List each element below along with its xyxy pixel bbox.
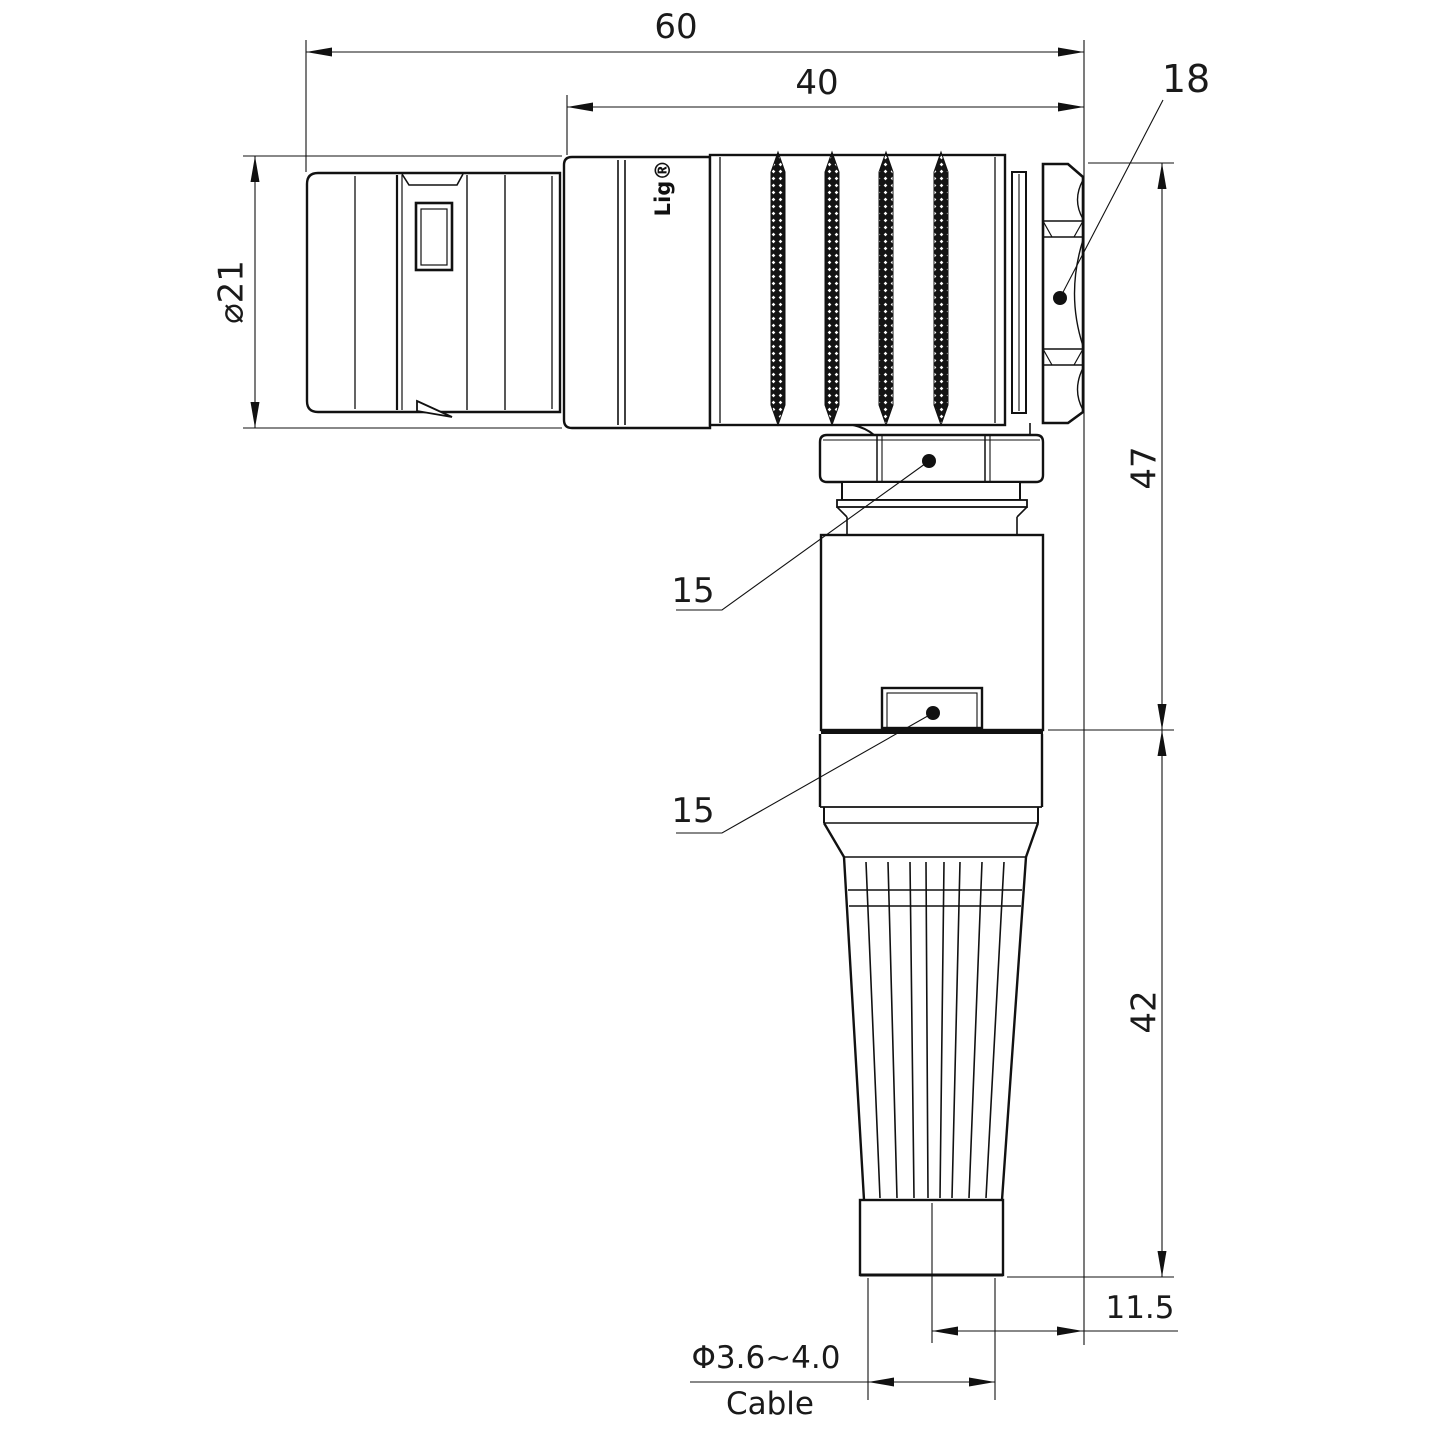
callout-coupling-nut-text: 15 (671, 571, 714, 611)
cable-label-text: Cable (726, 1386, 814, 1422)
dim-cable-diameter: Φ3.6~4.0 Cable (690, 1340, 995, 1422)
washer-ring (1012, 172, 1026, 413)
elbow-coupling-nut (820, 435, 1043, 482)
dim-cable-diameter-text: Φ3.6~4.0 (692, 1340, 841, 1376)
rear-barrel: Lig® (564, 157, 710, 428)
dim-rear-length: 40 (567, 63, 1084, 155)
brand-engraving: Lig® (651, 160, 675, 217)
lower-body (820, 535, 1043, 857)
dim-rear-length-text: 40 (795, 63, 838, 103)
dim-lower-height: 42 (1007, 730, 1174, 1277)
dim-lower-height-text: 42 (1125, 990, 1165, 1033)
step-rings (837, 482, 1027, 535)
dim-plug-diameter-text: ⌀21 (212, 260, 252, 324)
drawing-page: Lightany Lig® (0, 0, 1440, 1440)
dim-upper-height-text: 47 (1125, 446, 1165, 489)
dim-cable-offset: 11.5 (932, 1290, 1178, 1336)
knurled-sleeve (710, 152, 1005, 435)
strain-relief (844, 857, 1026, 1275)
dim-overall-length-text: 60 (654, 7, 697, 47)
callout-body-window-text: 15 (671, 791, 714, 831)
dim-cable-offset-text: 11.5 (1105, 1290, 1174, 1326)
front-release-sleeve (307, 173, 560, 417)
callout-hex-width-text: 18 (1162, 57, 1210, 101)
technical-drawing: Lightany Lig® (0, 0, 1440, 1440)
